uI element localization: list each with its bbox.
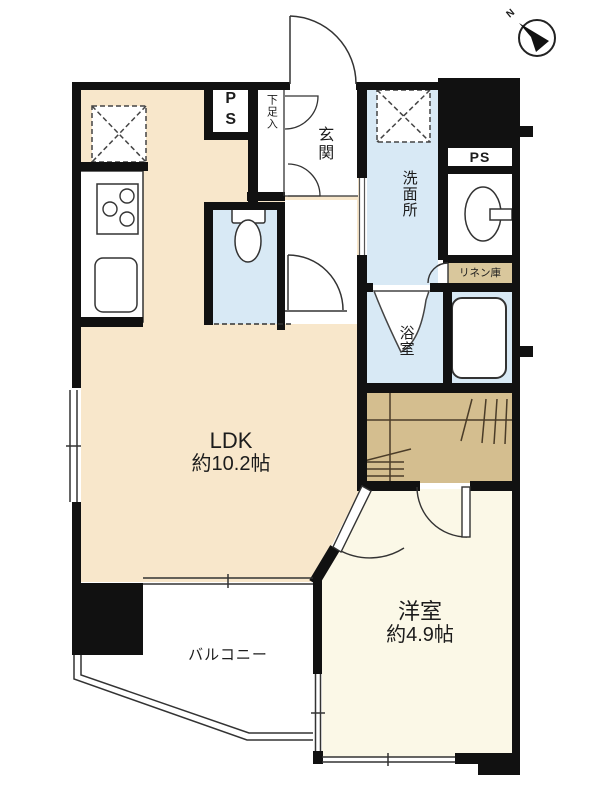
shoe-cabinet-label: 下足入 bbox=[265, 94, 278, 130]
balcony-railing bbox=[74, 655, 313, 740]
linen-closet-label: リネン庫 bbox=[459, 267, 501, 279]
ldk-name: LDK bbox=[192, 428, 271, 453]
pipe-space-left-label: PS bbox=[221, 90, 239, 132]
toilet-bowl bbox=[235, 220, 261, 262]
kitchen-sink bbox=[95, 258, 137, 312]
washbasin-faucet bbox=[490, 209, 512, 220]
entrance-label: 玄関 bbox=[314, 126, 332, 162]
washroom-label: 洗面所 bbox=[400, 170, 417, 218]
bathroom-label: 浴室 bbox=[397, 325, 414, 357]
ldk-size: 約10.2帖 bbox=[192, 453, 271, 476]
bedroom-size: 約4.9帖 bbox=[386, 624, 454, 647]
entry-door bbox=[290, 16, 356, 84]
washing-machine-space bbox=[377, 90, 430, 142]
pipe-space-right-label: PS bbox=[470, 149, 491, 165]
balcony-label: バルコニー bbox=[188, 646, 268, 663]
floor-plan: PS 下足入 玄関 PS 洗面所 リネン庫 浴室 LDK 約10.2帖 洋室 約… bbox=[0, 0, 600, 800]
refrigerator-space bbox=[92, 106, 146, 162]
floor-plan-drawing bbox=[0, 0, 600, 800]
compass-icon bbox=[519, 20, 555, 56]
ldk-label: LDK 約10.2帖 bbox=[192, 428, 271, 476]
bedroom-label: 洋室 約4.9帖 bbox=[386, 599, 454, 647]
hallway-floor bbox=[285, 200, 357, 324]
bathtub bbox=[452, 298, 506, 378]
washroom-sliding-door bbox=[360, 178, 365, 255]
bedroom-name: 洋室 bbox=[386, 599, 454, 624]
window-ldk-left bbox=[66, 390, 81, 502]
